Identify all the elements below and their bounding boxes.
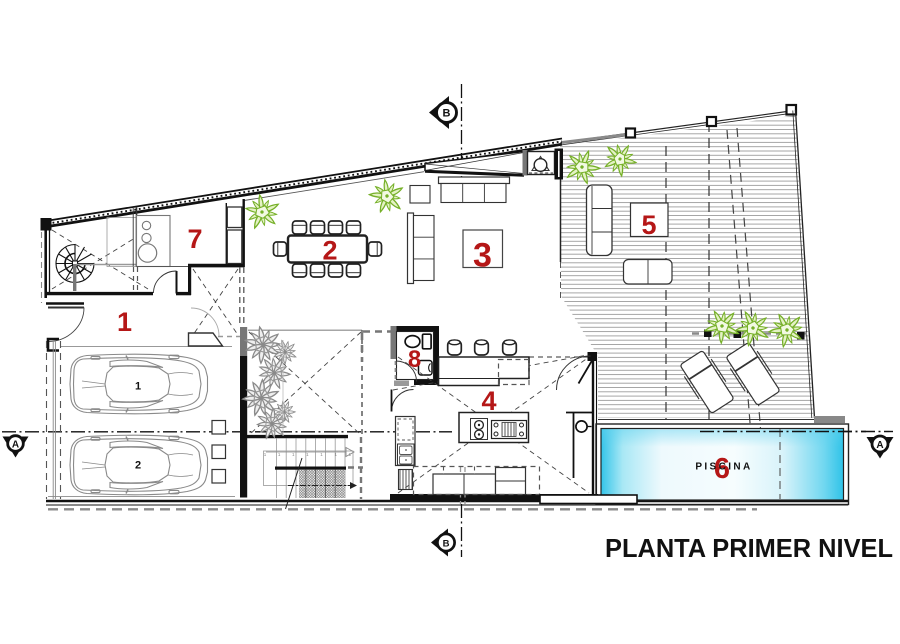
svg-text:7: 7	[187, 224, 202, 254]
svg-text:A: A	[12, 439, 19, 450]
svg-text:B: B	[443, 108, 451, 120]
svg-text:PLANTA PRIMER NIVEL: PLANTA PRIMER NIVEL	[605, 533, 893, 563]
svg-text:4: 4	[481, 386, 496, 416]
svg-text:B: B	[443, 538, 450, 549]
svg-text:3: 3	[473, 237, 492, 275]
svg-text:A: A	[876, 440, 883, 451]
svg-text:5: 5	[641, 210, 656, 240]
svg-text:2: 2	[135, 460, 141, 472]
svg-text:2: 2	[322, 236, 337, 266]
svg-text:PISCINA: PISCINA	[695, 462, 752, 473]
svg-text:8: 8	[408, 346, 421, 373]
svg-text:1: 1	[135, 381, 141, 393]
svg-text:1 1 1 1 1 1 1: 1 1 1 1 1 1 1	[264, 452, 357, 457]
svg-text:1: 1	[117, 307, 132, 337]
